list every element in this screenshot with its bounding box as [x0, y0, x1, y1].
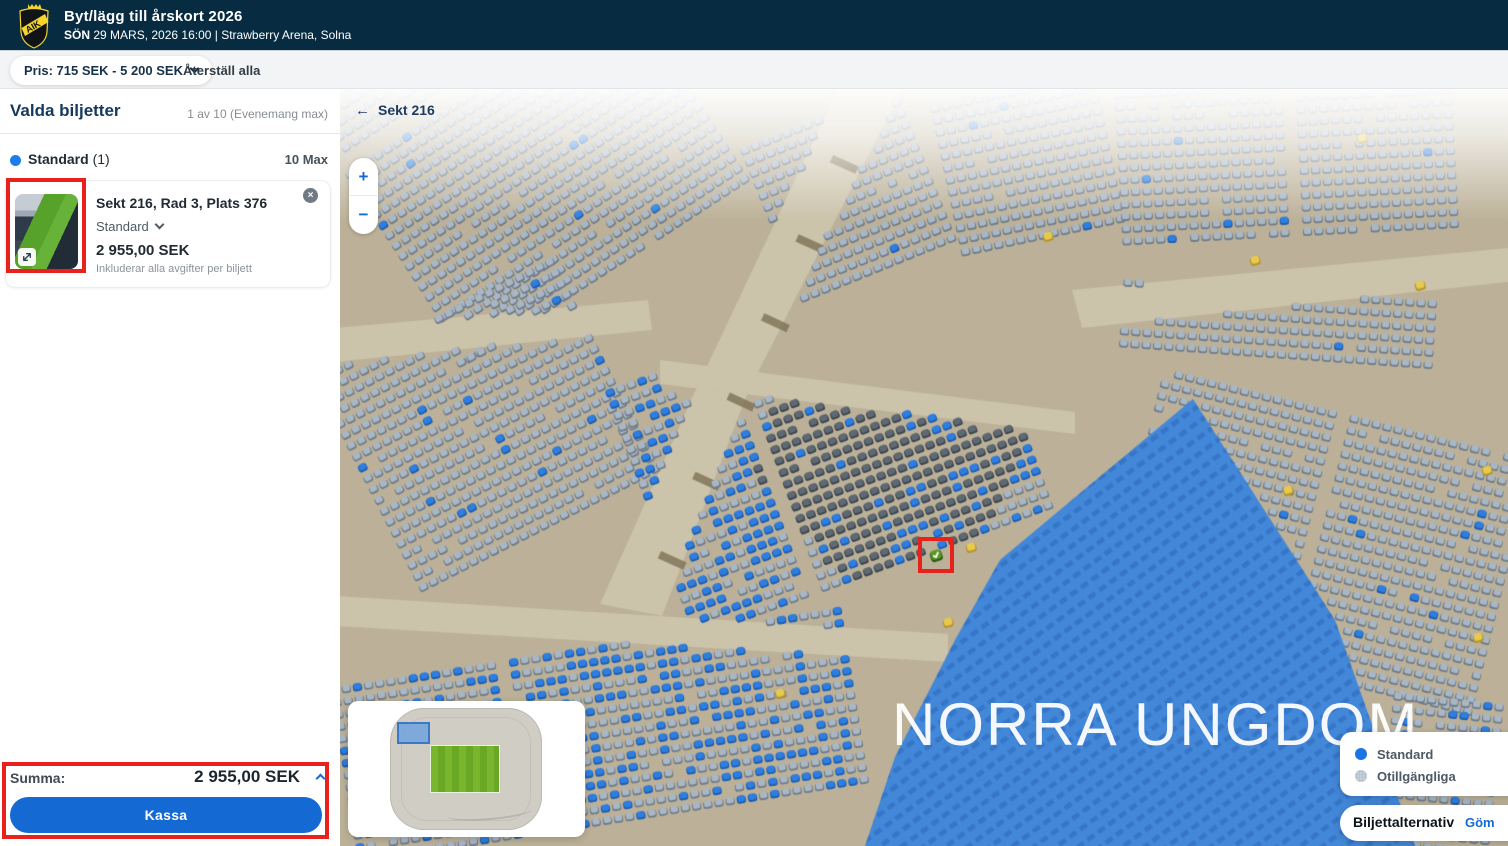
reset-filters-button[interactable]: Återställ alla	[183, 51, 260, 89]
group-max-label: 10 Max	[285, 152, 328, 167]
filter-bar: Pris: 715 SEK - 5 200 SEK Återställ alla	[0, 51, 1508, 89]
legend-row-standard: Standard	[1355, 743, 1508, 765]
remove-ticket-button[interactable]: ×	[303, 188, 318, 203]
minus-icon: −	[359, 205, 369, 225]
group-color-dot	[10, 155, 21, 166]
back-arrow-icon: ←	[355, 103, 370, 118]
close-icon: ×	[308, 191, 314, 201]
selected-tickets-panel: Valda biljetter 1 av 10 (Evenemang max) …	[0, 89, 340, 846]
event-datetime-venue: 29 MARS, 2026 16:00 | Strawberry Arena, …	[93, 28, 351, 42]
app-header: AIK Byt/lägg till årskort 2026 SÖN 29 MA…	[0, 0, 1508, 51]
ticket-options-label: Biljettalternativ	[1353, 814, 1454, 830]
ticket-price-note: Inkluderar alla avgifter per biljett	[96, 263, 252, 275]
legend-label-standard: Standard	[1377, 747, 1433, 762]
legend-row-unavailable: Otillgängliga	[1355, 765, 1508, 787]
price-filter-label: Pris: 715 SEK - 5 200 SEK	[24, 63, 183, 78]
stadium-minimap[interactable]	[348, 701, 585, 837]
seat-view-thumbnail[interactable]	[15, 194, 78, 269]
chevron-down-icon	[154, 220, 164, 230]
section-back-label: Sekt 216	[378, 102, 435, 118]
zoom-in-button[interactable]: +	[349, 158, 378, 195]
back-to-section-overview[interactable]: ← Sekt 216	[355, 102, 435, 118]
panel-title: Valda biljetter	[10, 101, 121, 121]
ticket-title: Sekt 216, Rad 3, Plats 376	[96, 195, 267, 211]
ticket-card: × Sekt 216, Rad 3, Plats 376 Standard 2 …	[5, 180, 331, 288]
hide-options-button[interactable]: Göm	[1465, 815, 1495, 830]
ticketing-app: AIK Byt/lägg till årskort 2026 SÖN 29 MA…	[0, 0, 1508, 846]
event-subtitle: SÖN 29 MARS, 2026 16:00 | Strawberry Are…	[64, 28, 351, 42]
expand-icon[interactable]	[18, 248, 36, 266]
ticket-count-label: 1 av 10 (Evenemang max)	[187, 107, 328, 121]
chevron-up-icon[interactable]	[316, 774, 326, 784]
price-filter-button[interactable]: Pris: 715 SEK - 5 200 SEK	[10, 56, 212, 85]
aik-logo: AIK	[14, 3, 54, 49]
stadium-pitch	[430, 745, 500, 793]
seat-map: NORRA UNGDOM ← Sekt 216 + − Standard	[340, 89, 1508, 846]
standard-status-dot	[1355, 748, 1367, 760]
plus-icon: +	[359, 167, 369, 187]
ticket-price: 2 955,00 SEK	[96, 242, 189, 259]
summary-total: 2 955,00 SEK	[194, 767, 300, 787]
ticket-type-selector[interactable]: Standard	[96, 219, 163, 234]
summary-label: Summa:	[10, 770, 65, 786]
ticket-options-bar: Biljettalternativ Göm	[1340, 805, 1508, 841]
minimap-viewport-rectangle[interactable]	[397, 722, 430, 744]
divider	[0, 133, 340, 134]
event-title: Byt/lägg till årskort 2026	[64, 8, 243, 25]
group-count: (1)	[93, 151, 110, 167]
zoom-controls: + −	[349, 158, 378, 234]
legend-label-unavailable: Otillgängliga	[1377, 769, 1456, 784]
ticket-type-label: Standard	[96, 219, 149, 234]
seat-legend: Standard Otillgängliga	[1340, 732, 1508, 796]
checkout-button[interactable]: Kassa	[10, 797, 322, 833]
unavailable-status-dot	[1355, 770, 1367, 782]
ticket-group-name: Standard (1)	[28, 151, 110, 167]
zoom-out-button[interactable]: −	[349, 196, 378, 233]
event-day: SÖN	[64, 28, 90, 42]
